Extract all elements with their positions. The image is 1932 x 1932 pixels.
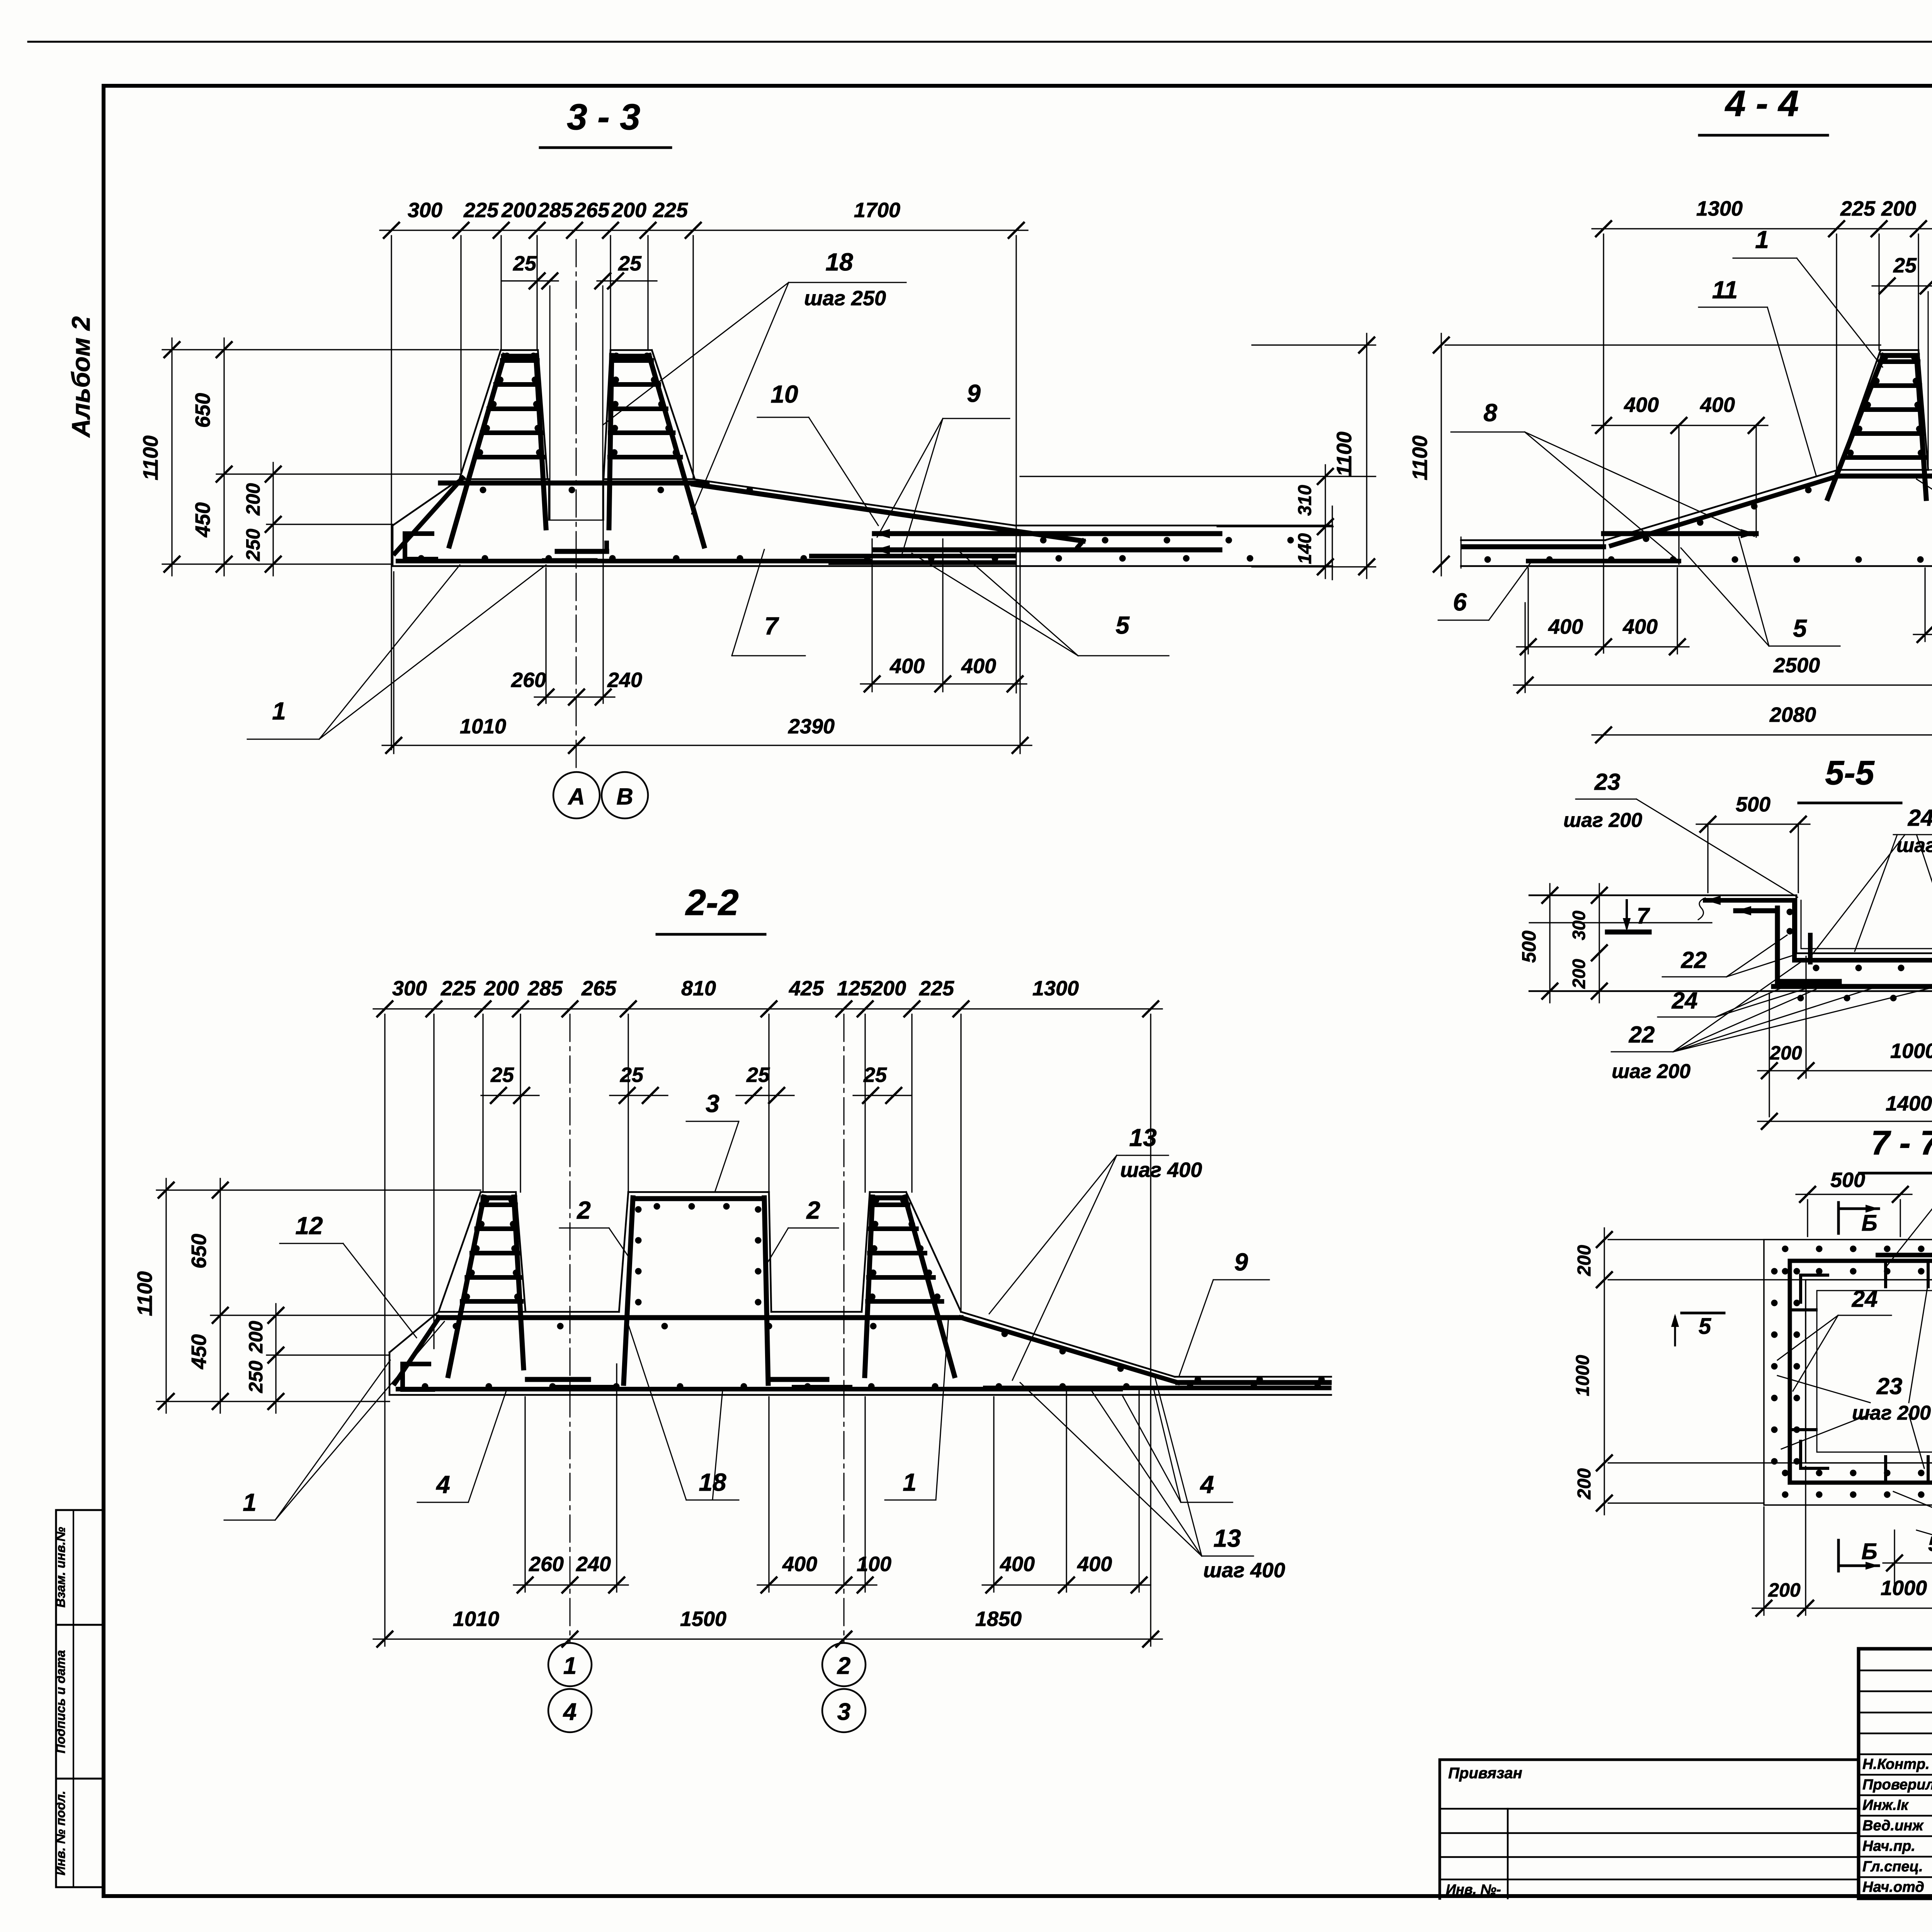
svg-text:1100: 1100 (133, 1271, 156, 1316)
svg-text:500: 500 (1518, 930, 1540, 963)
svg-text:шаг 250: шаг 250 (804, 287, 886, 310)
svg-text:3: 3 (837, 1699, 850, 1725)
svg-text:шаг 200: шаг 200 (1563, 809, 1642, 832)
svg-text:2-2: 2-2 (685, 882, 738, 923)
svg-text:285: 285 (537, 199, 573, 222)
svg-text:5: 5 (1699, 1314, 1711, 1339)
svg-text:Н.Контр.: Н.Контр. (1862, 1756, 1930, 1772)
svg-text:3 - 3: 3 - 3 (567, 97, 640, 138)
svg-text:Гл.спец.: Гл.спец. (1862, 1859, 1923, 1875)
svg-text:4: 4 (563, 1699, 577, 1725)
svg-text:7: 7 (1637, 903, 1650, 929)
svg-text:24: 24 (1672, 988, 1698, 1014)
svg-text:1: 1 (243, 1488, 257, 1516)
svg-text:200: 200 (871, 977, 906, 1000)
svg-text:400: 400 (1000, 1553, 1035, 1576)
svg-text:2500: 2500 (1773, 654, 1820, 677)
svg-text:285: 285 (527, 977, 563, 1000)
svg-text:200: 200 (242, 483, 264, 516)
svg-text:300: 300 (392, 977, 427, 1000)
svg-text:23: 23 (1594, 769, 1621, 795)
svg-text:2: 2 (806, 1196, 820, 1224)
svg-text:650: 650 (187, 1234, 211, 1269)
svg-text:Нач.пр.: Нач.пр. (1862, 1838, 1915, 1854)
svg-text:425: 425 (789, 977, 824, 1000)
svg-text:1010: 1010 (460, 715, 506, 738)
svg-text:400: 400 (1077, 1553, 1112, 1576)
svg-text:5: 5 (1116, 611, 1130, 639)
svg-text:200: 200 (245, 1321, 267, 1354)
svg-text:400: 400 (1624, 393, 1659, 417)
svg-text:10: 10 (770, 380, 798, 408)
svg-text:225: 225 (653, 199, 688, 222)
svg-text:Б: Б (1861, 1211, 1877, 1236)
svg-text:шаг 200: шаг 200 (1896, 834, 1932, 857)
svg-text:13: 13 (1213, 1524, 1241, 1552)
svg-text:1: 1 (563, 1653, 577, 1679)
svg-text:200: 200 (1569, 959, 1589, 989)
svg-text:6: 6 (1453, 588, 1467, 616)
svg-text:4: 4 (1199, 1471, 1214, 1498)
svg-text:500: 500 (1830, 1168, 1865, 1192)
svg-text:шаг 200: шаг 200 (1852, 1402, 1931, 1424)
svg-text:265: 265 (581, 977, 617, 1000)
svg-text:1500: 1500 (680, 1607, 726, 1631)
svg-text:260: 260 (529, 1553, 564, 1576)
svg-text:24: 24 (1852, 1286, 1878, 1312)
svg-text:13: 13 (1129, 1124, 1156, 1151)
svg-text:25: 25 (513, 252, 537, 275)
svg-text:Привязан: Привязан (1448, 1765, 1522, 1782)
svg-text:2: 2 (577, 1196, 591, 1224)
svg-text:400: 400 (1622, 615, 1658, 638)
svg-text:5: 5 (1793, 614, 1807, 642)
svg-text:4: 4 (435, 1471, 450, 1498)
svg-text:1100: 1100 (1408, 435, 1432, 480)
svg-text:12: 12 (295, 1212, 323, 1240)
svg-text:1100: 1100 (1333, 432, 1356, 476)
svg-text:200: 200 (1574, 1245, 1595, 1276)
svg-text:200: 200 (1574, 1468, 1595, 1500)
svg-text:225: 225 (463, 199, 499, 222)
svg-text:1000: 1000 (1881, 1577, 1927, 1600)
svg-text:9: 9 (967, 379, 981, 407)
svg-text:1: 1 (903, 1468, 917, 1496)
svg-text:200: 200 (1881, 197, 1916, 220)
svg-text:1100: 1100 (139, 435, 162, 480)
svg-text:Альбом 2: Альбом 2 (66, 316, 95, 438)
svg-text:450: 450 (191, 502, 214, 537)
svg-text:А: А (567, 784, 585, 810)
svg-text:650: 650 (191, 393, 214, 428)
svg-text:1: 1 (272, 697, 286, 725)
svg-text:25: 25 (490, 1063, 514, 1087)
svg-text:1: 1 (1755, 226, 1769, 253)
svg-text:1000: 1000 (1573, 1355, 1593, 1396)
svg-text:400: 400 (1700, 393, 1735, 417)
svg-text:23: 23 (1876, 1373, 1903, 1399)
svg-text:В: В (616, 784, 633, 810)
svg-text:200: 200 (484, 977, 519, 1000)
svg-text:25: 25 (620, 1063, 644, 1087)
svg-text:шаг 400: шаг 400 (1203, 1559, 1285, 1582)
svg-text:1850: 1850 (975, 1607, 1022, 1631)
svg-text:200: 200 (501, 199, 536, 222)
svg-text:310: 310 (1295, 485, 1315, 516)
svg-text:18: 18 (825, 248, 853, 276)
svg-text:265: 265 (574, 199, 610, 222)
svg-text:Инв. № подл.: Инв. № подл. (53, 1791, 68, 1875)
svg-text:2080: 2080 (1769, 703, 1816, 726)
svg-text:Проверил: Проверил (1862, 1777, 1932, 1793)
svg-text:1300: 1300 (1032, 977, 1079, 1000)
svg-text:225: 225 (1840, 197, 1876, 220)
svg-text:2390: 2390 (788, 715, 835, 738)
svg-text:240: 240 (576, 1553, 611, 1576)
svg-text:500: 500 (1736, 793, 1770, 816)
svg-text:225: 225 (919, 977, 954, 1000)
svg-text:400: 400 (1548, 615, 1583, 638)
svg-text:250: 250 (242, 529, 264, 561)
svg-text:1300: 1300 (1696, 197, 1743, 220)
svg-text:11: 11 (1712, 276, 1738, 304)
svg-text:200: 200 (1768, 1579, 1801, 1601)
svg-text:125: 125 (837, 977, 872, 1000)
svg-text:3: 3 (706, 1090, 719, 1117)
svg-text:400: 400 (782, 1553, 817, 1576)
svg-text:22: 22 (1681, 947, 1707, 973)
svg-text:300: 300 (408, 199, 442, 222)
svg-text:шаг 200: шаг 200 (1612, 1060, 1690, 1083)
svg-text:300: 300 (1569, 910, 1589, 940)
svg-text:9: 9 (1234, 1248, 1248, 1276)
svg-text:140: 140 (1295, 533, 1315, 564)
svg-text:1000: 1000 (1890, 1039, 1932, 1063)
svg-text:22: 22 (1629, 1022, 1655, 1048)
svg-text:250: 250 (245, 1361, 267, 1393)
svg-text:24: 24 (1908, 805, 1932, 831)
svg-text:18: 18 (699, 1468, 726, 1496)
svg-text:25: 25 (618, 252, 642, 275)
svg-text:Б: Б (1861, 1539, 1877, 1564)
svg-text:Подпись и дата: Подпись и дата (53, 1650, 68, 1753)
svg-text:Инж.Iк: Инж.Iк (1862, 1797, 1909, 1813)
svg-text:Инв. №-: Инв. №- (1446, 1881, 1501, 1897)
svg-text:1700: 1700 (854, 199, 900, 222)
svg-text:25: 25 (1893, 254, 1917, 277)
svg-text:100: 100 (857, 1553, 891, 1576)
svg-text:225: 225 (440, 977, 476, 1000)
svg-text:1400: 1400 (1886, 1092, 1932, 1115)
svg-text:5-5: 5-5 (1825, 753, 1874, 792)
svg-text:Взам. инв.№: Взам. инв.№ (53, 1527, 68, 1607)
svg-text:Вед.инж: Вед.инж (1862, 1818, 1924, 1834)
svg-text:25: 25 (746, 1063, 770, 1087)
svg-text:Нач.отд: Нач.отд (1862, 1879, 1924, 1895)
svg-text:240: 240 (607, 668, 642, 692)
svg-text:4 - 4: 4 - 4 (1725, 83, 1799, 124)
svg-text:450: 450 (187, 1334, 211, 1369)
svg-text:1010: 1010 (453, 1607, 499, 1631)
svg-text:400: 400 (961, 655, 996, 678)
svg-text:810: 810 (681, 977, 716, 1000)
svg-text:7 - 7: 7 - 7 (1871, 1124, 1932, 1162)
svg-text:400: 400 (889, 655, 925, 678)
svg-text:7: 7 (764, 612, 779, 640)
svg-text:200: 200 (611, 199, 646, 222)
svg-text:260: 260 (511, 668, 546, 692)
svg-text:шаг 400: шаг 400 (1120, 1158, 1202, 1182)
svg-text:8: 8 (1483, 399, 1497, 427)
svg-text:500: 500 (1928, 1532, 1932, 1556)
svg-text:200: 200 (1769, 1042, 1802, 1064)
svg-text:25: 25 (863, 1063, 887, 1087)
svg-text:2: 2 (837, 1653, 850, 1679)
